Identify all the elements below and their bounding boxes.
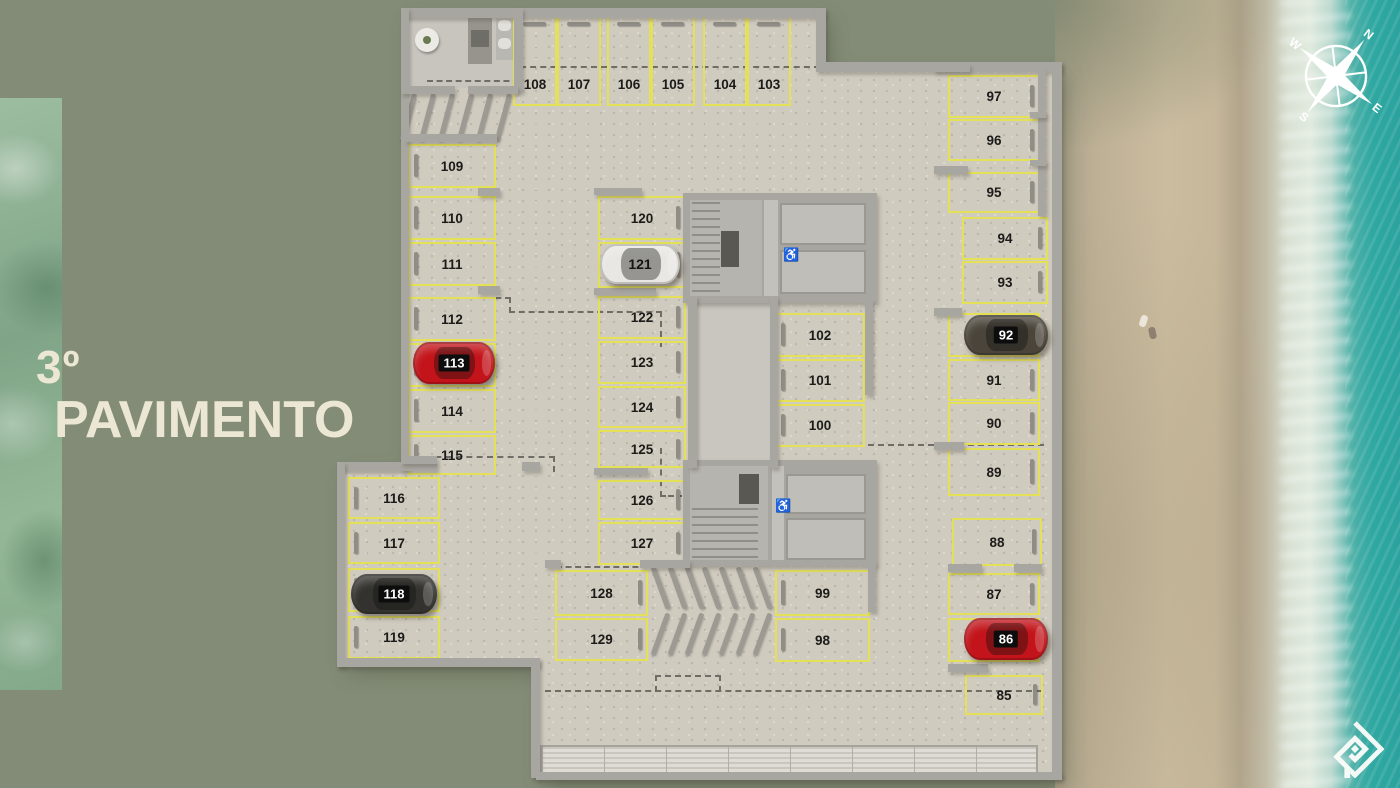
stair-treads bbox=[692, 508, 758, 558]
wall-segment bbox=[770, 296, 778, 468]
accessibility-icon: ♿ bbox=[783, 247, 799, 263]
spot-number: 107 bbox=[568, 77, 591, 92]
core-corridor bbox=[764, 200, 778, 296]
parking-spot-100: 100 bbox=[775, 404, 865, 447]
lane-marking bbox=[719, 675, 721, 692]
wall-segment bbox=[948, 664, 988, 672]
herringbone-stall-divider bbox=[668, 612, 688, 655]
wall-segment bbox=[401, 456, 437, 464]
accessibility-icon: ♿ bbox=[775, 498, 791, 514]
wall-segment bbox=[478, 286, 500, 294]
car-in-spot-86: 86 bbox=[964, 618, 1048, 660]
car-spot-number: 86 bbox=[994, 631, 1018, 648]
parking-spot-101: 101 bbox=[775, 359, 865, 402]
car-in-spot-121: 121 bbox=[600, 244, 680, 284]
parking-spot-90: 90 bbox=[948, 402, 1040, 445]
parking-spot-107: 107 bbox=[557, 16, 601, 106]
wall-segment bbox=[594, 468, 648, 475]
wall-segment bbox=[1038, 70, 1046, 216]
spot-number: 117 bbox=[383, 536, 405, 551]
moto-stall-divider bbox=[495, 93, 512, 141]
parking-spot-87: 87 bbox=[948, 573, 1040, 615]
parking-spot-85: 85 bbox=[965, 675, 1043, 715]
parking-spot-109: 109 bbox=[408, 144, 496, 188]
spot-number: 91 bbox=[986, 373, 1001, 388]
parking-spot-103: 103 bbox=[747, 16, 791, 106]
spot-number: 104 bbox=[714, 77, 737, 92]
wall-segment bbox=[948, 564, 982, 572]
parking-spot-88: 88 bbox=[952, 518, 1042, 566]
compass-rose-icon: N E S W bbox=[1278, 18, 1394, 134]
compass-letter-e: E bbox=[1370, 100, 1385, 116]
parking-spot-125: 125 bbox=[598, 430, 686, 468]
wall-segment bbox=[1030, 160, 1046, 166]
wall-segment bbox=[594, 188, 642, 195]
wall-segment bbox=[401, 8, 825, 18]
parking-spot-129: 129 bbox=[555, 618, 648, 661]
stair-opening bbox=[739, 474, 759, 504]
wall-segment bbox=[868, 562, 876, 612]
wall-segment bbox=[934, 308, 962, 316]
lane-marking bbox=[655, 675, 721, 677]
wall-segment bbox=[401, 8, 409, 470]
parking-spot-127: 127 bbox=[598, 522, 686, 565]
wall-segment bbox=[934, 64, 970, 72]
parking-spot-97: 97 bbox=[948, 75, 1040, 118]
parking-spot-98: 98 bbox=[775, 618, 870, 662]
compass-letter-s: S bbox=[1297, 109, 1312, 125]
spot-number: 127 bbox=[631, 536, 654, 551]
parking-spot-111: 111 bbox=[408, 242, 496, 286]
wall-segment bbox=[1030, 112, 1046, 118]
wall-segment bbox=[865, 300, 873, 395]
parking-spot-128: 128 bbox=[555, 570, 648, 616]
herringbone-stall-divider bbox=[702, 612, 722, 655]
car-spot-number: 92 bbox=[994, 327, 1018, 344]
herringbone-stall-divider bbox=[719, 612, 739, 655]
parking-spot-119: 119 bbox=[348, 616, 440, 659]
wall-segment bbox=[405, 134, 497, 142]
wall-segment bbox=[1052, 62, 1062, 778]
parking-spot-126: 126 bbox=[598, 480, 686, 520]
spot-number: 102 bbox=[809, 328, 832, 343]
spot-number: 128 bbox=[590, 586, 613, 601]
parking-spot-124: 124 bbox=[598, 386, 686, 428]
herringbone-stall-divider bbox=[736, 566, 756, 609]
spot-number: 105 bbox=[662, 77, 685, 92]
elevator-shaft bbox=[780, 203, 866, 245]
spot-number: 87 bbox=[986, 587, 1001, 602]
wall-segment bbox=[536, 772, 1062, 780]
elevator-shaft bbox=[786, 474, 866, 514]
spot-number: 109 bbox=[441, 159, 464, 174]
herringbone-stall-divider bbox=[736, 612, 756, 655]
central-hall bbox=[697, 296, 770, 468]
herringbone-stall-divider bbox=[668, 566, 688, 609]
parking-spot-89: 89 bbox=[948, 448, 1040, 496]
herringbone-stall-divider bbox=[651, 566, 671, 609]
spot-number: 97 bbox=[986, 89, 1001, 104]
spot-number: 108 bbox=[524, 77, 547, 92]
lane-marking bbox=[553, 456, 555, 472]
herringbone-stall-divider bbox=[753, 566, 773, 609]
parking-spot-116: 116 bbox=[348, 477, 440, 519]
spot-number: 88 bbox=[989, 535, 1004, 550]
spot-number: 95 bbox=[986, 185, 1001, 200]
spot-number: 93 bbox=[997, 275, 1012, 290]
wall-segment bbox=[401, 86, 455, 94]
herringbone-stall-divider bbox=[702, 566, 722, 609]
stair-core-bottom: ♿ bbox=[683, 460, 877, 566]
wall-segment bbox=[531, 658, 540, 778]
spot-number: 123 bbox=[631, 355, 654, 370]
spot-number: 120 bbox=[631, 211, 654, 226]
spot-number: 116 bbox=[383, 491, 405, 506]
parking-spot-96: 96 bbox=[948, 119, 1040, 161]
spot-number: 111 bbox=[441, 257, 462, 272]
wall-segment bbox=[594, 288, 656, 295]
parking-spot-110: 110 bbox=[408, 196, 496, 240]
spot-number: 90 bbox=[986, 416, 1001, 431]
stair-treads bbox=[692, 202, 720, 294]
spot-number: 119 bbox=[383, 630, 405, 645]
wall-segment bbox=[514, 8, 523, 92]
spot-number: 89 bbox=[986, 465, 1001, 480]
compass-letter-n: N bbox=[1361, 26, 1376, 42]
spot-number: 129 bbox=[590, 632, 613, 647]
parking-spot-105: 105 bbox=[651, 16, 695, 106]
car-spot-number: 118 bbox=[379, 586, 410, 603]
spot-number: 112 bbox=[441, 312, 463, 327]
parking-spot-95: 95 bbox=[948, 172, 1040, 213]
spot-number: 114 bbox=[441, 404, 463, 419]
floor-number: 3º bbox=[36, 344, 354, 390]
spot-number: 96 bbox=[986, 133, 1001, 148]
compass-letter-w: W bbox=[1286, 35, 1304, 53]
wall-segment bbox=[522, 462, 540, 471]
parking-spot-91: 91 bbox=[948, 359, 1040, 401]
herringbone-stall-divider bbox=[651, 612, 671, 655]
wall-segment bbox=[337, 462, 345, 667]
car-in-spot-118: 118 bbox=[351, 574, 437, 614]
herringbone-stall-divider bbox=[685, 566, 705, 609]
spot-number: 106 bbox=[618, 77, 641, 92]
parking-spot-94: 94 bbox=[962, 217, 1048, 260]
spot-number: 103 bbox=[758, 77, 781, 92]
spot-number: 101 bbox=[809, 373, 832, 388]
parking-spot-120: 120 bbox=[598, 196, 686, 240]
parking-spot-112: 112 bbox=[408, 297, 496, 341]
herringbone-stall-divider bbox=[719, 566, 739, 609]
parking-spot-102: 102 bbox=[775, 313, 865, 357]
elevator-shaft bbox=[786, 518, 866, 560]
spot-number: 126 bbox=[631, 493, 654, 508]
lane-marking bbox=[655, 675, 657, 692]
spot-number: 110 bbox=[441, 211, 463, 226]
spot-number: 85 bbox=[996, 688, 1011, 703]
parking-spot-122: 122 bbox=[598, 296, 686, 339]
scene: 3º PAVIMENTO ♿ ♿ bbox=[0, 0, 1400, 788]
lane-marking bbox=[509, 297, 511, 313]
wall-segment bbox=[468, 86, 518, 94]
kitchen-counter-icon bbox=[468, 14, 492, 64]
wall-segment bbox=[545, 560, 561, 568]
spot-number: 122 bbox=[631, 310, 654, 325]
wall-segment bbox=[337, 658, 540, 667]
title-block: 3º PAVIMENTO bbox=[36, 344, 354, 446]
floor-name: PAVIMENTO bbox=[54, 394, 354, 446]
toilet-fixtures-icon bbox=[496, 16, 513, 60]
herringbone-stall-divider bbox=[685, 612, 705, 655]
parking-spot-114: 114 bbox=[408, 389, 496, 433]
herringbone-stall-divider bbox=[753, 612, 773, 655]
wall-segment bbox=[478, 188, 500, 196]
spot-number: 125 bbox=[631, 442, 654, 457]
ventilation-grille bbox=[540, 745, 1038, 775]
spot-number: 98 bbox=[815, 633, 830, 648]
parking-spot-93: 93 bbox=[962, 261, 1048, 304]
spot-number: 99 bbox=[815, 586, 830, 601]
wall-segment bbox=[640, 560, 690, 568]
parking-spot-117: 117 bbox=[348, 522, 440, 564]
round-table-icon bbox=[415, 28, 439, 52]
parking-spot-99: 99 bbox=[775, 570, 870, 616]
utility-room bbox=[405, 12, 515, 88]
wall-segment bbox=[934, 166, 968, 174]
stair-opening bbox=[721, 231, 739, 267]
spot-number: 124 bbox=[631, 400, 654, 415]
spot-number: 94 bbox=[997, 231, 1012, 246]
brand-logo-icon bbox=[1326, 720, 1384, 778]
car-spot-number: 113 bbox=[439, 355, 470, 372]
car-in-spot-113: 113 bbox=[413, 342, 495, 384]
parking-spot-106: 106 bbox=[607, 16, 651, 106]
wall-segment bbox=[1014, 564, 1042, 572]
wall-segment bbox=[688, 296, 697, 468]
wall-segment bbox=[816, 8, 826, 68]
car-in-spot-92: 92 bbox=[964, 315, 1048, 355]
spot-number: 115 bbox=[441, 448, 463, 463]
lane-marking bbox=[427, 80, 519, 82]
parking-spot-104: 104 bbox=[703, 16, 747, 106]
spot-number: 100 bbox=[809, 418, 832, 433]
parking-spot-123: 123 bbox=[598, 341, 686, 384]
wall-segment bbox=[934, 442, 964, 450]
car-spot-number: 121 bbox=[623, 255, 656, 273]
stair-core-top: ♿ bbox=[683, 193, 877, 303]
lane-marking bbox=[556, 566, 648, 568]
